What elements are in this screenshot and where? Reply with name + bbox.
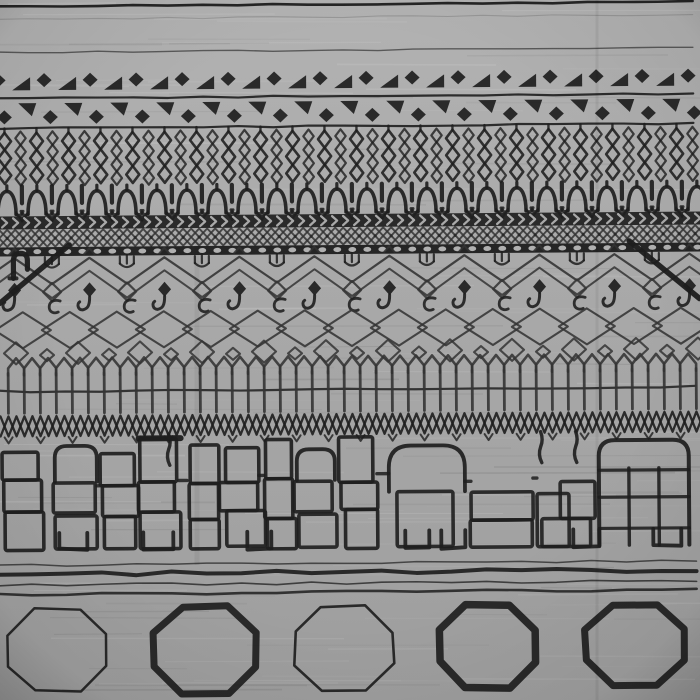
moroccan-rug-photo — [0, 0, 700, 700]
rug-photo-figure — [0, 0, 700, 700]
